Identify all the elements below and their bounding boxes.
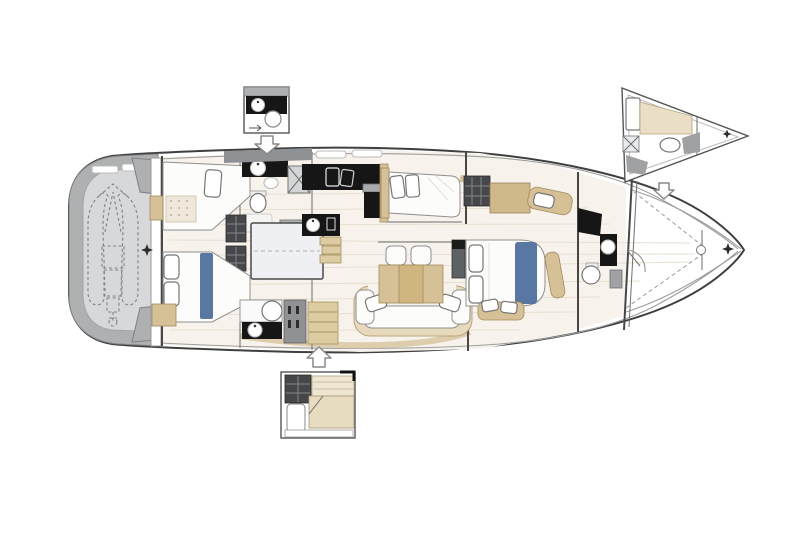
fridge-column [364, 192, 382, 218]
toilet [262, 301, 282, 321]
deck-hatch [92, 166, 118, 173]
faucet [607, 242, 610, 245]
deck-fitting [697, 246, 706, 255]
option-berth [309, 396, 354, 428]
shower-tray [287, 404, 305, 432]
washbasin [252, 99, 265, 112]
sideboard-top [452, 240, 465, 249]
deck-plan-canvas [0, 0, 800, 533]
inset-top-trim [244, 87, 289, 96]
faucet [257, 101, 259, 103]
companionway-step [322, 246, 341, 254]
bed-runner [200, 253, 213, 319]
starboard-aft-head [240, 300, 338, 344]
pillow [469, 276, 483, 303]
pillow [405, 175, 420, 198]
baseboard [285, 430, 353, 437]
companionway-step [320, 237, 341, 245]
midship-head-option-inset [244, 87, 289, 154]
shower-stool [610, 270, 622, 288]
pillow [204, 169, 222, 197]
cabinet [490, 183, 530, 213]
berth-headboard [150, 196, 163, 220]
wardrobe [284, 300, 306, 343]
toilet [250, 194, 266, 213]
pillow [390, 175, 406, 199]
pillow [469, 245, 483, 272]
quilted-mattress [166, 196, 196, 222]
crew-toilet [660, 138, 680, 152]
stern-swim-platform [69, 154, 161, 346]
sink-bowl [264, 178, 278, 189]
salon-chair [386, 246, 406, 265]
hanging-locker [464, 176, 490, 206]
faucet [257, 163, 260, 166]
salon-chair [411, 246, 431, 265]
pillow [164, 255, 179, 279]
table-center-leaf [399, 265, 423, 303]
bow-crew-cabin-option-inset [622, 88, 748, 199]
counter-top [312, 376, 354, 396]
deck-hatch [352, 150, 382, 157]
bench-pillow [481, 299, 499, 313]
aft-cabin-steps [308, 302, 338, 344]
shower-basin [265, 111, 281, 127]
bed-foot-runner [515, 242, 537, 304]
faucet [312, 220, 314, 222]
bench-pillow [500, 301, 517, 314]
crew-berth-pillow [626, 98, 640, 130]
berth-head-frame [381, 168, 389, 218]
yacht-layout-diagram [0, 0, 800, 533]
toilet [582, 266, 600, 284]
companionway-step [320, 255, 341, 263]
deck-hatch [316, 151, 346, 158]
faucet [254, 325, 257, 328]
aft-cabin-option-inset [281, 347, 355, 438]
berth-footboard [152, 304, 176, 326]
pillow [164, 282, 179, 306]
